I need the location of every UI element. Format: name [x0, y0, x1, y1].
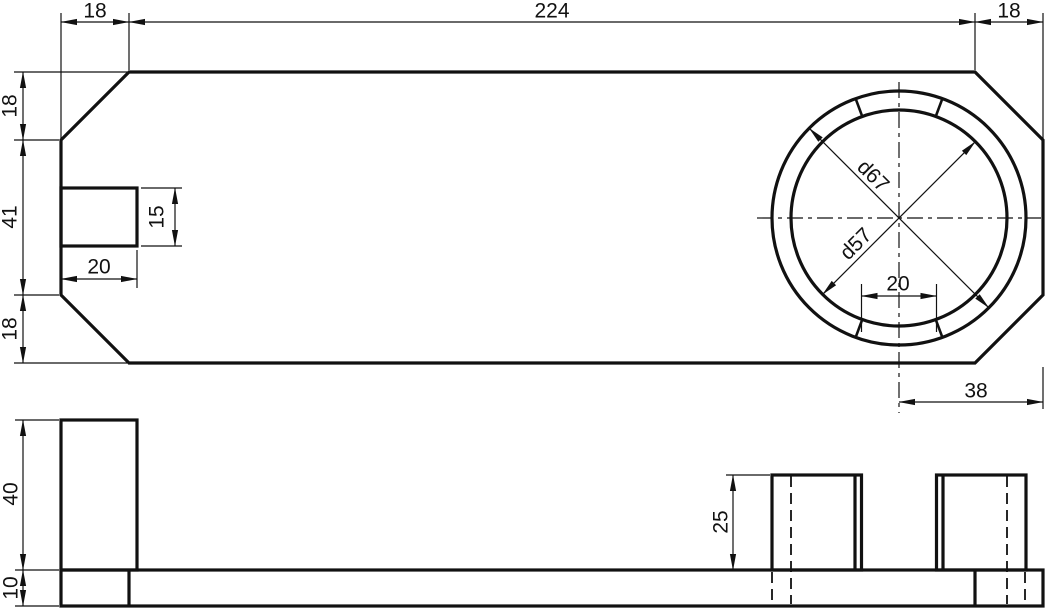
dim-text-ring-height: 25 — [711, 510, 732, 533]
base-plate-outline — [61, 570, 1043, 606]
ring-cut-top-right — [936, 99, 943, 117]
plate-outline — [61, 72, 1043, 363]
dim-text-notch-height: 15 — [147, 205, 168, 228]
dim-text-notch-width: 20 — [87, 257, 110, 278]
ring-cut-top-left — [856, 99, 863, 117]
dim-text-plate-thickness: 10 — [1, 576, 22, 599]
drawing-svg — [0, 0, 1046, 611]
dim-text-top-left-chamfer: 18 — [83, 1, 106, 22]
side-view — [15, 420, 1043, 606]
ring-wall-left — [772, 475, 862, 570]
boss-outline — [61, 188, 137, 246]
dim-text-left-bottom-chamfer: 18 — [0, 317, 21, 340]
dim-text-left-top-chamfer: 18 — [0, 94, 21, 117]
dim-text-top-middle: 224 — [534, 1, 569, 22]
ring-wall-right — [937, 475, 1027, 570]
dim-text-boss-height: 40 — [1, 482, 22, 505]
dim-text-offset-right: 38 — [964, 381, 987, 402]
dim-text-left-middle: 41 — [0, 205, 21, 228]
boss-side-outline — [61, 420, 137, 570]
dim-text-tab-gap: 20 — [886, 274, 909, 295]
dim-text-top-right-chamfer: 18 — [997, 1, 1020, 22]
drawing-canvas: 18 224 18 18 41 18 15 20 d67 d57 20 38 4… — [0, 0, 1046, 611]
